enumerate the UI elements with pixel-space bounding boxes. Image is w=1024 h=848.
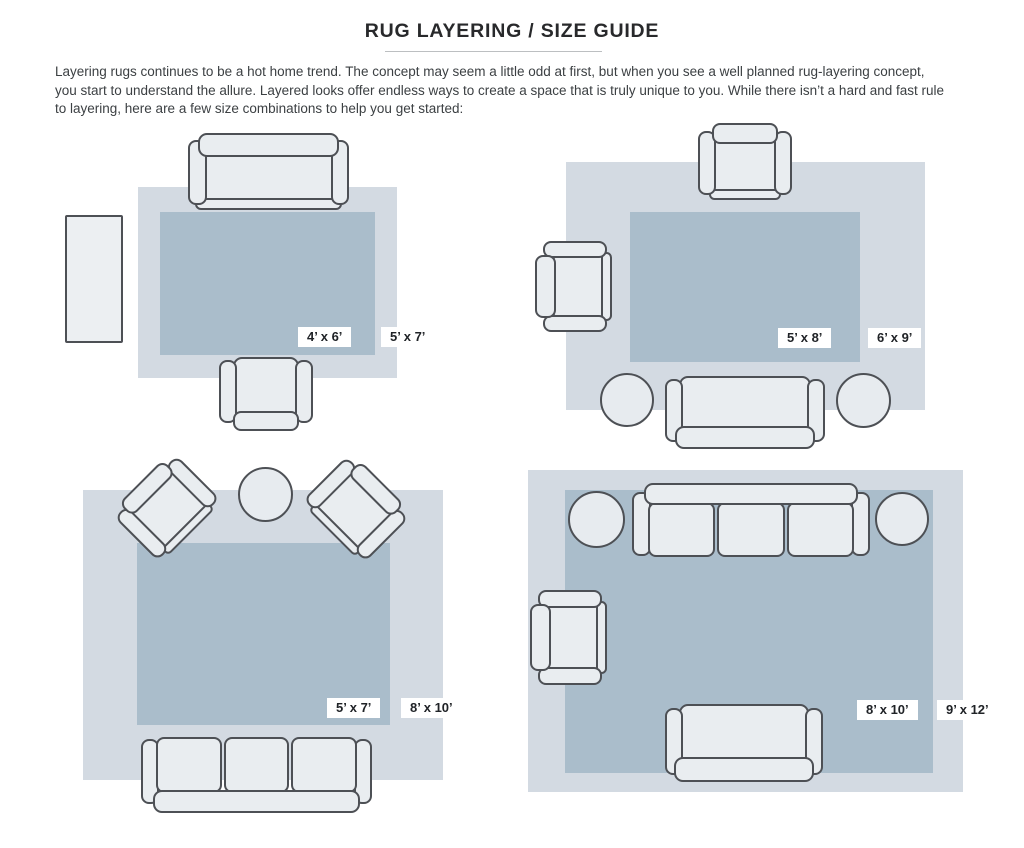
side-table <box>65 215 123 343</box>
armchair-bottom <box>219 356 313 431</box>
diagram-bottom-left: 5’ x 7’ 8’ x 10’ <box>30 440 510 848</box>
inner-rug-size-label: 5’ x 7’ <box>327 698 380 718</box>
diagram-top-left: 4’ x 6’ 5’ x 7’ <box>60 120 500 450</box>
three-seat-sofa-bottom <box>141 737 372 813</box>
armchair-left <box>530 590 607 685</box>
loveseat-bottom <box>665 702 823 782</box>
diagram-bottom-right: 8’ x 10’ 9’ x 12’ <box>510 440 1024 848</box>
outer-rug-size-label: 9’ x 12’ <box>937 700 998 720</box>
three-seat-sofa-top <box>632 483 870 557</box>
intro-line-2: you start to understand the allure. Laye… <box>55 82 985 101</box>
inner-rug-size-label: 5’ x 8’ <box>778 328 831 348</box>
loveseat-bottom <box>665 374 825 449</box>
intro-line-1: Layering rugs continues to be a hot home… <box>55 63 985 82</box>
round-table-right <box>836 373 891 428</box>
armchair-top <box>698 123 792 200</box>
round-table-left <box>600 373 654 427</box>
outer-rug-size-label: 5’ x 7’ <box>381 327 434 347</box>
inner-rug-size-label: 4’ x 6’ <box>298 327 351 347</box>
round-table-right <box>875 492 929 546</box>
round-table-center <box>238 467 293 522</box>
page-title: RUG LAYERING / SIZE GUIDE <box>0 20 1024 43</box>
outer-rug-size-label: 6’ x 9’ <box>868 328 921 348</box>
title-divider <box>385 51 602 52</box>
diagram-top-right: 5’ x 8’ 6’ x 9’ <box>520 110 1024 460</box>
armchair-left <box>535 241 612 332</box>
sofa-top <box>188 133 349 210</box>
rug-size-guide-page: RUG LAYERING / SIZE GUIDE Layering rugs … <box>0 0 1024 848</box>
inner-rug-size-label: 8’ x 10’ <box>857 700 918 720</box>
round-table-left <box>568 491 625 548</box>
outer-rug-size-label: 8’ x 10’ <box>401 698 462 718</box>
